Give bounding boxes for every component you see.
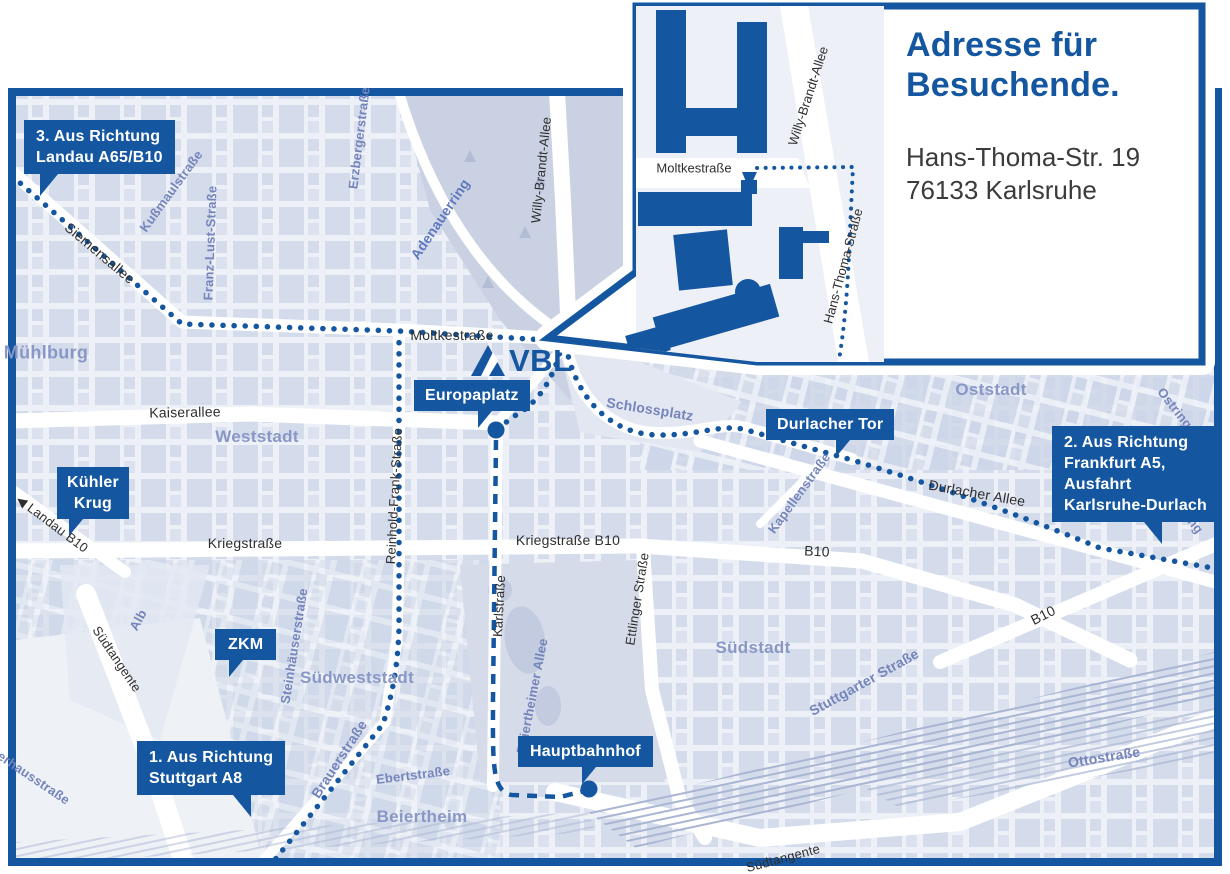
callout-line: Europaplatz [425, 385, 519, 406]
callout-line: Hauptbahnhof [530, 741, 641, 762]
callout-tail [69, 519, 83, 536]
inset-address-line: Hans-Thoma-Str. 19 [906, 141, 1140, 174]
callout-europaplatz: Europaplatz [414, 380, 530, 411]
callout-tail [836, 440, 850, 457]
street-label-kaiserallee: Kaiserallee [149, 403, 221, 420]
callout-tail [40, 174, 58, 196]
vbl-logo: VBL [470, 344, 573, 377]
callout-tail [229, 660, 243, 677]
callout-tail [478, 411, 492, 428]
inset-street-label-moltkestrasse: Moltkestraße [656, 161, 731, 176]
karlsruhe-directions-map: Siemensallee Moltkestraße Kaiserallee Kr… [0, 0, 1230, 874]
callout-line: Ausfahrt [1064, 474, 1207, 495]
callout-line: Stuttgart A8 [149, 768, 273, 789]
vbl-logo-text: VBL [509, 345, 573, 376]
area-label-muehlburg: Mühlburg [4, 343, 88, 364]
callout-line: Landau A65/B10 [36, 147, 163, 168]
callout-line: Karlsruhe-Durlach [1064, 495, 1207, 516]
callout-zkm: ZKM [215, 629, 276, 660]
callout-line: Krug [67, 493, 119, 514]
street-label-moltkestrasse: Moltkestraße [410, 327, 493, 343]
street-label-kriegstrasse-b10: Kriegstraße B10 [516, 532, 620, 548]
callout-line: 1. Aus Richtung [149, 747, 273, 768]
callout-durlacher-tor: Durlacher Tor [766, 409, 894, 440]
callout-line: Durlacher Tor [777, 414, 883, 435]
area-label-suedstadt: Südstadt [715, 638, 790, 658]
callout-kuehler-krug: Kühler Krug [57, 467, 129, 519]
area-label-oststadt: Oststadt [955, 380, 1026, 400]
area-label-weststadt: Weststadt [215, 427, 299, 447]
callout-route-3-landau: 3. Aus Richtung Landau A65/B10 [24, 120, 175, 174]
inset-address-line: 76133 Karlsruhe [906, 174, 1140, 207]
inset-title-line: Besuchende. [906, 66, 1120, 106]
area-label-beiertheim: Beiertheim [377, 807, 468, 827]
callout-line: 3. Aus Richtung [36, 126, 163, 147]
street-label-kriegstrasse: Kriegstraße [208, 535, 283, 551]
callout-tail [582, 767, 596, 784]
vbl-triangle-icon [470, 344, 506, 377]
callout-tail [1144, 522, 1162, 544]
inset-title-line: Adresse für [906, 26, 1120, 66]
callout-route-1-stuttgart: 1. Aus Richtung Stuttgart A8 [137, 741, 285, 795]
callout-tail [233, 795, 251, 817]
area-label-suedweststadt: Südweststadt [300, 668, 414, 688]
callout-line: 2. Aus Richtung [1064, 432, 1207, 453]
inset-title: Adresse für Besuchende. [906, 26, 1120, 106]
callout-line: Kühler [67, 472, 119, 493]
callout-line: Frankfurt A5, [1064, 453, 1207, 474]
street-label-b10-west: B10 [804, 542, 830, 559]
callout-route-2-frankfurt: 2. Aus Richtung Frankfurt A5, Ausfahrt K… [1052, 426, 1219, 522]
inset-address: Hans-Thoma-Str. 19 76133 Karlsruhe [906, 141, 1140, 208]
callout-hauptbahnhof: Hauptbahnhof [518, 736, 653, 767]
callout-line: ZKM [228, 634, 263, 655]
